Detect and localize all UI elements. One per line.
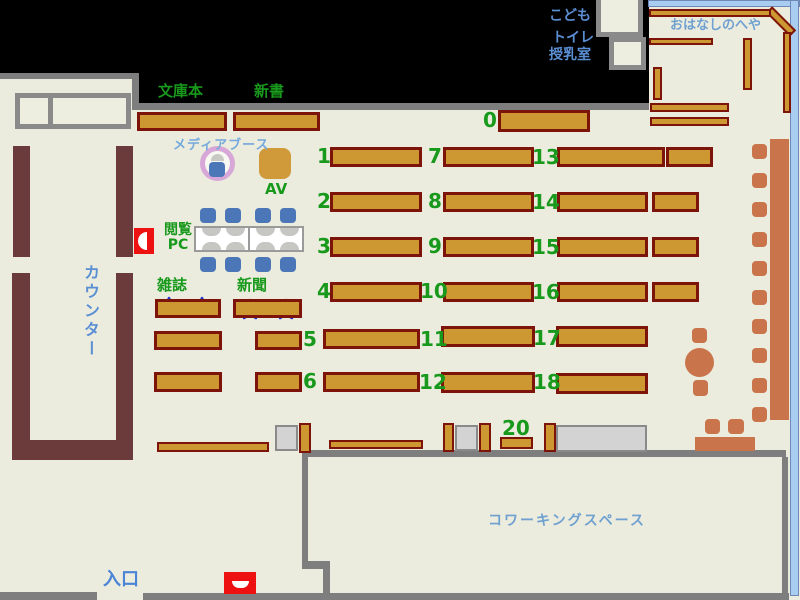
reading-chair [728, 419, 744, 434]
media-booth-seat [211, 154, 224, 161]
bookshelf [154, 372, 222, 392]
label-entrance: 入口 [103, 569, 139, 592]
shelf-number-15: 15 [532, 237, 560, 257]
shelf-number-12: 12 [419, 372, 447, 392]
bookshelf [233, 112, 320, 131]
pc-table [194, 226, 304, 252]
pc-chair [255, 257, 271, 272]
shelf-number-5: 5 [303, 329, 317, 349]
bookshelf [443, 423, 454, 452]
bookshelf [255, 331, 302, 350]
bookshelf [666, 147, 713, 167]
shelf-number-20: 20 [502, 418, 530, 438]
bookshelf [479, 423, 491, 452]
pc-chair [280, 257, 296, 272]
bookshelf [155, 299, 221, 318]
bookshelf [557, 237, 648, 257]
gate-desk [455, 425, 478, 451]
window-seat [752, 378, 767, 393]
label-bunkobon: 文庫本 [158, 83, 203, 100]
bookshelf [443, 282, 534, 302]
shelf-number-2: 2 [317, 191, 331, 211]
table-seat-mark [226, 242, 245, 250]
shelf-number-16: 16 [532, 282, 560, 302]
shelf-number-13: 13 [532, 147, 560, 167]
label-shinsho: 新書 [254, 83, 284, 100]
bookshelf [330, 192, 422, 212]
label-nursing-room: 授乳室 [549, 47, 591, 65]
gate-sensor [232, 581, 249, 588]
bookshelf [783, 32, 791, 113]
bookshelf [649, 38, 713, 45]
reading-chair [692, 328, 707, 343]
label-coworking-space: コワーキングスペース [488, 513, 646, 531]
return-desk [15, 93, 131, 129]
story-room-wall-right [790, 0, 799, 596]
window-seat [752, 202, 767, 217]
exterior-black-top-left [0, 0, 137, 73]
shelf-number-18: 18 [533, 372, 561, 392]
window-seat [752, 144, 767, 159]
bookshelf [653, 67, 662, 100]
bookshelf [557, 192, 648, 212]
coworking-reception-desk [556, 425, 647, 452]
shelf-number-4: 4 [317, 281, 331, 301]
table-seat-mark [280, 242, 299, 250]
pc-chair [225, 257, 241, 272]
outer-wall-bottom-left [0, 592, 97, 600]
bookshelf [556, 373, 648, 394]
table-seat-mark [256, 242, 275, 250]
bookshelf [556, 326, 648, 347]
table-seat-mark [202, 228, 221, 236]
pc-chair [225, 208, 241, 223]
shelf-number-11: 11 [420, 329, 448, 349]
label-toilet: トイレ [552, 30, 594, 48]
counter-u-bottom [12, 440, 133, 460]
label-counter: カウンター [80, 264, 100, 359]
shelf-number-3: 3 [317, 236, 331, 256]
counter-wall-upper-left [13, 146, 30, 257]
pc-chair [200, 257, 216, 272]
bookshelf [330, 282, 422, 302]
bookshelf [441, 372, 535, 393]
window-seat [752, 232, 767, 247]
story-room-wall-top [648, 0, 800, 7]
window-seat [752, 319, 767, 334]
table-seat-mark [256, 228, 275, 236]
bookshelf [441, 326, 535, 347]
label-story-room: おはなしのへや [670, 18, 761, 34]
room-kids-toilet [596, 0, 643, 37]
bookshelf [330, 147, 422, 167]
bookshelf [233, 299, 302, 318]
bookshelf [652, 192, 699, 212]
window-seat [752, 173, 767, 188]
gate-sensor [138, 232, 147, 250]
desk-divider [48, 98, 53, 124]
bookshelf [649, 9, 771, 17]
reading-chair [705, 419, 720, 434]
label-reading-pc: 閲覧 PC [163, 223, 193, 254]
security-gate-left [134, 228, 154, 254]
shelf-number-14: 14 [532, 192, 560, 212]
label-newspapers: 新聞 [237, 277, 267, 294]
window-seat [752, 290, 767, 305]
window-seat [752, 261, 767, 276]
reading-chair [693, 380, 708, 396]
reading-bench [695, 437, 755, 451]
room-nursing [609, 37, 646, 70]
label-media-booth: メディアブース [173, 134, 269, 153]
media-booth-chair [209, 162, 225, 177]
shelf-number-9: 9 [428, 236, 442, 256]
bookshelf [329, 440, 423, 449]
counter-wall-upper-right [116, 146, 133, 257]
bookshelf [652, 282, 699, 302]
bookshelf [557, 147, 665, 167]
wall-top-left [0, 73, 137, 79]
bookshelf [299, 423, 311, 453]
window-seat [752, 348, 767, 363]
coworking-wall-left [302, 450, 308, 567]
shelf-number-0: 0 [483, 110, 497, 130]
bookshelf [137, 112, 227, 131]
counter-u-right [116, 273, 133, 440]
shelf-number-6: 6 [303, 371, 317, 391]
bookshelf [323, 329, 420, 349]
window-counter-table [770, 139, 789, 420]
shelf-number-1: 1 [317, 146, 331, 166]
counter-u-left [12, 273, 30, 460]
outer-wall-bottom [143, 593, 789, 600]
bookshelf [650, 103, 729, 112]
bookshelf [650, 117, 729, 126]
bookshelf [557, 282, 648, 302]
shelf-number-17: 17 [533, 328, 561, 348]
bookshelf [154, 331, 222, 350]
pc-chair [200, 208, 216, 223]
bookshelf [544, 423, 556, 452]
security-gate-entrance [224, 572, 256, 594]
reading-table-circle [685, 348, 714, 377]
bookshelf [255, 372, 302, 392]
bookshelf [743, 38, 752, 90]
label-kids: こども [549, 8, 591, 26]
pc-table-divider [248, 228, 250, 250]
library-floor-map: 文庫本 新書 メディアブース AV 閲覧 PC 雑誌 新聞 カウンター 入口 こ… [0, 0, 800, 600]
bookshelf [323, 372, 420, 392]
table-seat-mark [226, 228, 245, 236]
label-magazines: 雑誌 [157, 277, 187, 294]
bookshelf [443, 147, 534, 167]
window-seat [752, 407, 767, 422]
label-av: AV [265, 181, 287, 198]
pc-chair [255, 208, 271, 223]
shelf-number-8: 8 [428, 191, 442, 211]
wall-top-long [135, 103, 649, 110]
shelf-number-7: 7 [428, 146, 442, 166]
bookshelf [443, 192, 534, 212]
bookshelf [157, 442, 269, 452]
gate-desk [275, 425, 298, 451]
bookshelf [652, 237, 699, 257]
shelf-number-10: 10 [420, 281, 448, 301]
pc-chair [280, 208, 296, 223]
bookshelf [330, 237, 422, 257]
table-seat-mark [202, 242, 221, 250]
bookshelf [498, 110, 590, 132]
table-seat-mark [280, 228, 299, 236]
coworking-wall-right [782, 457, 788, 594]
bookshelf [443, 237, 534, 257]
